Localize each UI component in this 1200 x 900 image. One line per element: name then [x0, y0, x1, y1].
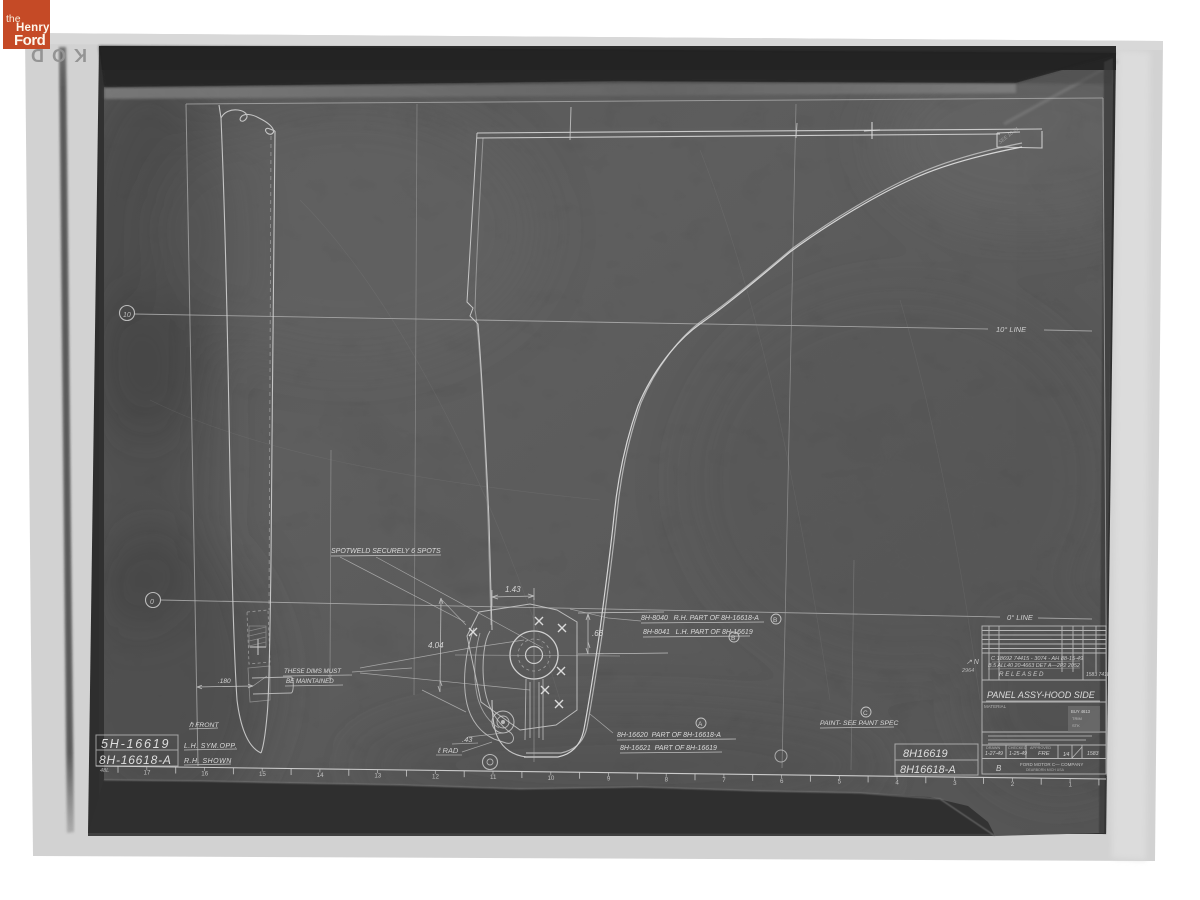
svg-text:1: 1 [1068, 782, 1072, 789]
svg-text:8H-16620 PART OF 8H-16618-A: 8H-16620 PART OF 8H-16618-A [617, 732, 721, 739]
svg-text:PANEL ASSY-HOOD SIDE: PANEL ASSY-HOOD SIDE [987, 690, 1096, 700]
svg-text:8H-16618-A: 8H-16618-A [99, 753, 172, 767]
svg-text:10: 10 [123, 312, 131, 319]
svg-text:DEARBORN MICH USA: DEARBORN MICH USA [1026, 768, 1065, 772]
svg-text:6: 6 [780, 778, 784, 785]
svg-text:SPOTWELD SECURELY 6 SPOTS: SPOTWELD SECURELY 6 SPOTS [331, 548, 441, 555]
svg-text:2: 2 [1011, 781, 1015, 788]
svg-text:.180: .180 [218, 678, 231, 685]
svg-text:10° LINE: 10° LINE [996, 325, 1027, 334]
svg-text:12: 12 [432, 773, 439, 780]
svg-text:FRE: FRE [1038, 751, 1050, 757]
svg-text:R E L E A S E D: R E L E A S E D [999, 671, 1044, 678]
svg-text:9: 9 [607, 776, 611, 783]
svg-text:0: 0 [150, 599, 154, 606]
svg-text:B: B [996, 764, 1002, 773]
svg-text:7: 7 [722, 777, 726, 784]
svg-text:1.43: 1.43 [505, 585, 521, 594]
svg-text:PAINT- SEE PAINT SPEC: PAINT- SEE PAINT SPEC [820, 720, 899, 727]
svg-text:8H-8040 R.H. PART OF 8H-1661: 8H-8040 R.H. PART OF 8H-16618-A [641, 615, 759, 622]
svg-text:A: A [698, 721, 703, 728]
svg-text:8H-16621 PART OF 8H-16619: 8H-16621 PART OF 8H-16619 [620, 745, 717, 752]
svg-text:0° LINE: 0° LINE [1007, 613, 1034, 622]
svg-text:11: 11 [490, 774, 497, 781]
svg-text:13: 13 [374, 773, 381, 780]
svg-text:4: 4 [895, 779, 899, 786]
svg-text:BUY 4613: BUY 4613 [1071, 709, 1091, 714]
svg-text:B: B [773, 617, 777, 624]
svg-text:5: 5 [838, 779, 842, 786]
svg-text:14: 14 [317, 772, 324, 779]
svg-text:↗ N: ↗ N [966, 659, 980, 666]
svg-text:C: C [863, 710, 868, 717]
svg-text:MATERIAL: MATERIAL [984, 704, 1007, 709]
svg-text:THESE DIMS MUST: THESE DIMS MUST [284, 668, 342, 675]
svg-text:ℓ RAD: ℓ RAD [437, 746, 459, 755]
svg-text:8H16618-A: 8H16618-A [900, 764, 956, 776]
svg-text:5H-16619: 5H-16619 [101, 737, 170, 751]
svg-text:10: 10 [547, 775, 554, 782]
svg-text:BE MAINTAINED: BE MAINTAINED [286, 678, 334, 685]
svg-text:8H16619: 8H16619 [903, 748, 948, 760]
svg-text:1⁄4: 1⁄4 [1063, 752, 1070, 758]
svg-text:3: 3 [953, 780, 957, 787]
svg-text:FORD MOTOR C— COMPANY: FORD MOTOR C— COMPANY [1020, 762, 1083, 767]
svg-text:1583: 1583 [1087, 751, 1099, 757]
svg-text:1583 7418: 1583 7418 [1086, 672, 1110, 678]
svg-text:1-25-49: 1-25-49 [1009, 751, 1027, 757]
svg-text:2964: 2964 [961, 668, 974, 674]
svg-text:B: B [731, 635, 735, 642]
svg-text:48L: 48L [100, 768, 109, 774]
svg-text:16: 16 [201, 770, 208, 777]
svg-text:8: 8 [665, 776, 669, 783]
svg-text:1-27-49: 1-27-49 [985, 751, 1003, 757]
svg-text:STK: STK [1072, 723, 1080, 728]
svg-text:DRAWN: DRAWN [986, 746, 1000, 750]
svg-text:CHECKED: CHECKED [1008, 746, 1027, 750]
svg-text:TRIM: TRIM [1072, 716, 1082, 721]
svg-text:.66: .66 [592, 629, 604, 638]
svg-text:APPROVED: APPROVED [1030, 746, 1051, 750]
svg-text:17: 17 [144, 770, 151, 777]
svg-text:15: 15 [259, 771, 266, 778]
svg-text:4.04: 4.04 [428, 641, 444, 650]
